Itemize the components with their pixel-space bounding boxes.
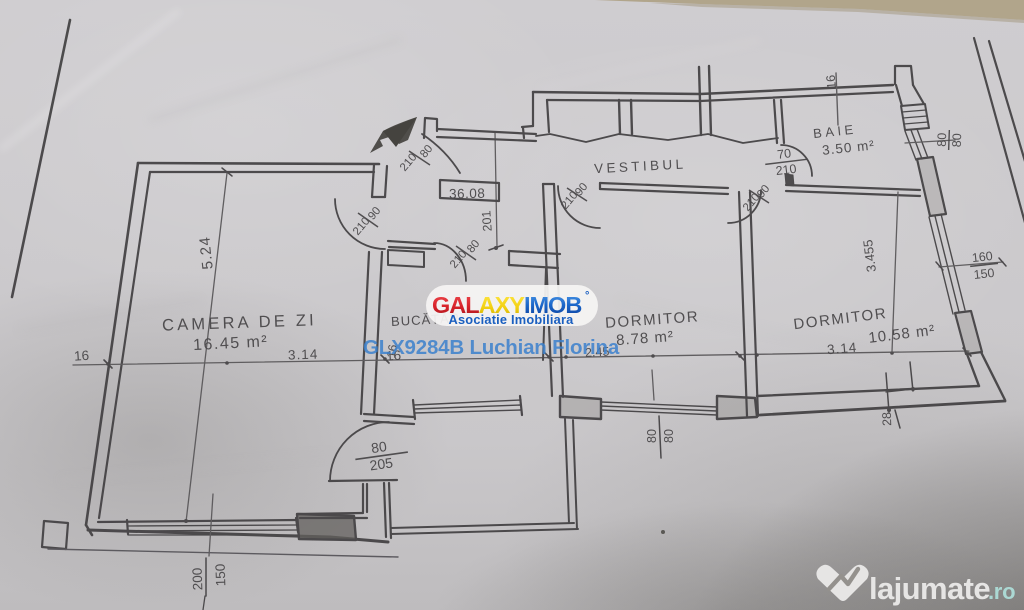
- svg-text:36.08: 36.08: [449, 186, 486, 202]
- svg-text:Asociatie Imobiliara: Asociatie Imobiliara: [449, 312, 575, 327]
- svg-text:16: 16: [74, 348, 90, 364]
- svg-text:70: 70: [776, 146, 792, 162]
- svg-text:GLX9284B Luchian Florina: GLX9284B Luchian Florina: [363, 336, 620, 359]
- svg-text:150: 150: [973, 266, 995, 282]
- svg-text:80: 80: [645, 429, 659, 443]
- svg-text:201: 201: [479, 210, 494, 232]
- svg-text:200: 200: [190, 567, 206, 590]
- svg-text:3.14: 3.14: [826, 340, 857, 358]
- svg-text:5.24: 5.24: [196, 235, 216, 270]
- svg-text:.ro: .ro: [988, 579, 1015, 604]
- svg-text:150: 150: [213, 563, 229, 586]
- svg-text:80: 80: [370, 438, 388, 456]
- svg-text:16: 16: [824, 74, 839, 89]
- svg-text:160: 160: [971, 249, 993, 265]
- svg-text:80: 80: [935, 133, 949, 147]
- svg-text:°: °: [585, 290, 589, 302]
- svg-text:28: 28: [880, 412, 894, 426]
- svg-text:80: 80: [662, 429, 676, 443]
- svg-text:80: 80: [950, 133, 964, 147]
- svg-text:lajumate: lajumate: [869, 571, 990, 606]
- svg-text:210: 210: [775, 162, 797, 178]
- svg-text:3.14: 3.14: [288, 347, 319, 363]
